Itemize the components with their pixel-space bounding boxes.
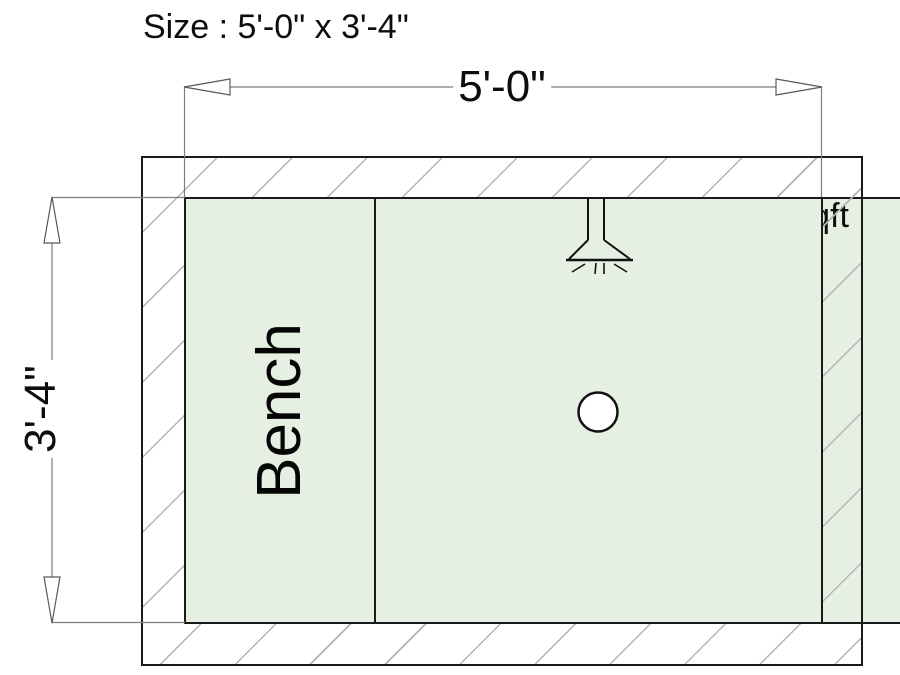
width-dim-arrow-right-icon bbox=[776, 79, 822, 95]
bench-area: Bench bbox=[186, 199, 374, 622]
width-dim-arrow-left-icon bbox=[184, 79, 230, 95]
bench-label: Bench bbox=[249, 323, 311, 499]
height-dim-text: 3'-4" bbox=[19, 360, 63, 458]
floor-plan-canvas: Size : 5'-0" x 3'-4" Heated Area : 13sqf… bbox=[0, 0, 900, 675]
bench-divider-line bbox=[374, 199, 376, 622]
height-dim-arrow-top-icon bbox=[44, 197, 60, 243]
height-dim-arrow-bottom-icon bbox=[44, 577, 60, 623]
width-dim-text: 5'-0" bbox=[453, 65, 551, 109]
size-label: Size : 5'-0" x 3'-4" bbox=[143, 10, 409, 44]
